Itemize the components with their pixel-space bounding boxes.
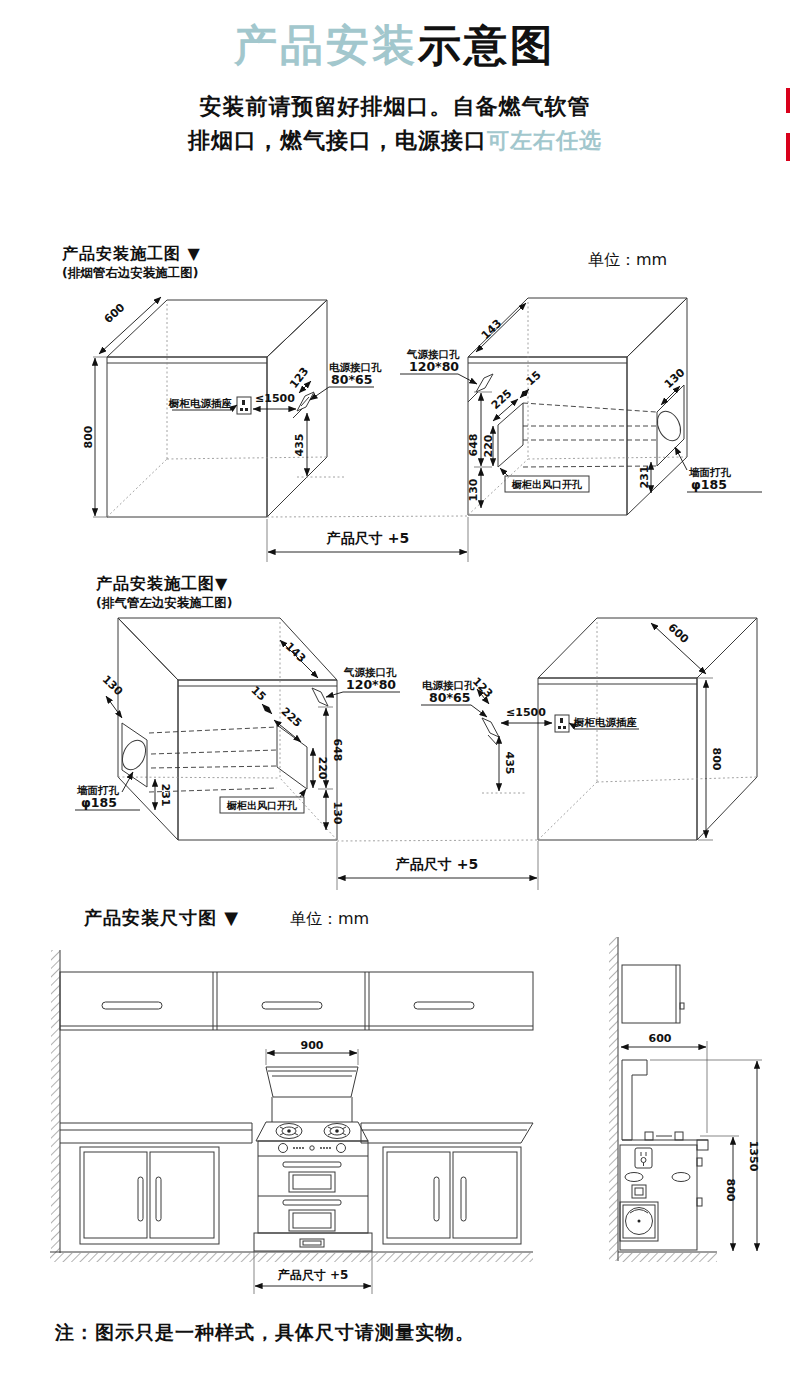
s3-front-view: 900 产品尺寸 +5 [50,950,533,1294]
s3-side-view: 600 [609,937,762,1262]
subtitle-line2: 排烟口，燃气接口，电源接口可左右任选 [0,126,790,156]
s3-floor-hatch [50,1253,533,1262]
s2-power-hole-size: 80*65 [429,690,470,705]
s3-side-handle [672,1173,690,1182]
s2-wall-hole-drop: 231 [159,784,172,807]
s1-right-cabinet: 143 气源接口孔 120*80 225 15 648 130 220 [400,298,762,515]
subtitle-line2-accent: 可左右任选 [487,128,602,153]
s1-vent-cutout-label: 橱柜出风口开孔 [511,479,583,490]
page-title: 产品安装示意图 [0,22,790,69]
s1-vent-opening [498,403,523,467]
s3-side-wall-hatch [609,937,618,1261]
page-title-accent: 产品安装 [234,20,418,70]
s2-vent-cutout-label: 橱柜出风口开孔 [226,800,298,811]
s3-counter-height: 800 [724,1179,737,1202]
s2-vent-width: 225 [278,705,304,730]
s1-wall-hole [653,408,685,445]
s2-vent-height: 220 [316,757,329,780]
s1-gas-hole [476,374,493,392]
s3-knob-left [279,1144,288,1153]
s2-socket-label: 橱柜电源插座 [573,716,638,728]
s3-product-width-label: 产品尺寸 +5 [277,1268,349,1282]
s2-wall-hole-size: φ185 [81,795,117,810]
section3-diagram: 900 产品尺寸 +5 600 [0,900,790,1320]
s2-vent-drop-total: 648 [331,739,344,762]
s1-vent-bottom-offset: 130 [467,478,480,501]
s3-side-valve-icon [632,1185,646,1198]
s2-socket-icon [555,715,569,732]
s3-cabinet-handle [102,1002,162,1009]
s2-wall-hole-offset: 130 [100,673,126,699]
s1-dim-depth: 600 [102,301,128,326]
s3-side-stove [620,1060,708,1250]
s3-counter-depth: 600 [649,1032,672,1045]
s1-gas-hole-size: 120*80 [409,359,459,374]
s1-vent-height: 220 [482,434,495,457]
s2-dim-depth: 600 [666,621,692,646]
s2-wall-hole [118,737,150,774]
s3-dim-800: 800 [700,1136,739,1251]
s2-wall-hole-frame [122,723,147,787]
s1-dim-height: 800 [82,425,95,448]
s2-vent-bottom-offset: 130 [331,802,344,825]
section2-diagram: 143 气源接口孔 120*80 15 225 220 648 130 [0,570,790,900]
subtitle-line1: 安装前请预留好排烟口。自备燃气软管 [0,92,790,122]
s3-cabinet-handle [262,1002,322,1009]
s1-product-width-label: 产品尺寸 +5 [326,530,409,546]
s2-gas-hole [312,688,328,706]
s1-wall-hole-size: φ185 [691,477,727,492]
s2-socket-distance: ≤1500 [506,706,546,719]
s2-right-cabinet: 600 800 电源接口孔 80*65 123 ≤1500 橱柜电源插座 435 [421,618,757,840]
s3-side-floor-hatch [618,1253,717,1262]
s3-cabinet-handle [414,1002,474,1009]
footer-note: 注：图示只是一种样式，具体尺寸请测量实物。 [55,1320,475,1346]
s1-vent-inset: 15 [524,368,544,388]
s3-dim-600: 600 [621,1032,707,1133]
s2-product-width-label: 产品尺寸 +5 [395,856,478,872]
s1-vent-drop-total: 648 [467,434,480,457]
s3-dim-900: 900 [266,1039,358,1065]
s3-dim-1350: 1350 [650,1060,762,1251]
s1-power-drop: 435 [293,434,306,457]
s3-stove-unit [254,1067,372,1251]
s1-socket-icon [237,397,251,414]
s3-knob-right [337,1144,346,1153]
s2-power-drop: 435 [503,752,516,775]
subtitle-line2-main: 排烟口，燃气接口，电源接口 [188,128,487,153]
s3-stove-width: 900 [301,1039,324,1052]
s1-wall-hole-drop: 231 [638,466,651,489]
s2-power-hole [482,718,499,737]
s1-power-offset: 123 [287,365,311,391]
s2-gas-offset: 143 [283,640,309,665]
s3-burner-left [276,1124,302,1139]
s1-left-cabinet: 800 600 橱柜电源插座 ≤1500 123 电源接口孔 80*65 435 [82,297,382,517]
s3-side-fan [620,1202,658,1241]
product-install-page: 产品安装示意图 安装前请预留好排烟口。自备燃气软管 排烟口，燃气接口，电源接口可… [0,0,790,1380]
s2-left-cabinet: 143 气源接口孔 120*80 15 225 220 648 130 [75,618,400,840]
section1-diagram: 800 600 橱柜电源插座 ≤1500 123 电源接口孔 80*65 435 [0,240,790,570]
s1-power-hole-size: 80*65 [331,372,372,387]
s3-side-handle [625,1173,643,1182]
s1-vent-width: 225 [489,387,515,412]
s3-upper-cabinets [60,972,533,1030]
s1-socket-distance: ≤1500 [255,392,295,405]
s1-socket-label: 橱柜电源插座 [168,397,233,409]
s1-gas-offset: 143 [479,317,505,342]
s3-side-plug-icon [635,1148,652,1168]
s2-product-width: 产品尺寸 +5 [337,840,538,890]
page-title-main: 示意图 [418,20,556,70]
s3-side-upper-cabinet [622,965,684,1023]
red-edge-marker-1 [786,88,790,113]
s2-gas-hole-size: 120*80 [346,677,396,692]
s3-total-height: 1350 [747,1141,760,1172]
s3-countertop [60,1123,533,1143]
s3-burner-right [324,1124,350,1139]
s2-dim-height: 800 [710,748,723,771]
s3-wall-hatch [51,950,60,1253]
red-edge-marker-2 [786,133,790,161]
s1-product-width: 产品尺寸 +5 [267,516,468,562]
